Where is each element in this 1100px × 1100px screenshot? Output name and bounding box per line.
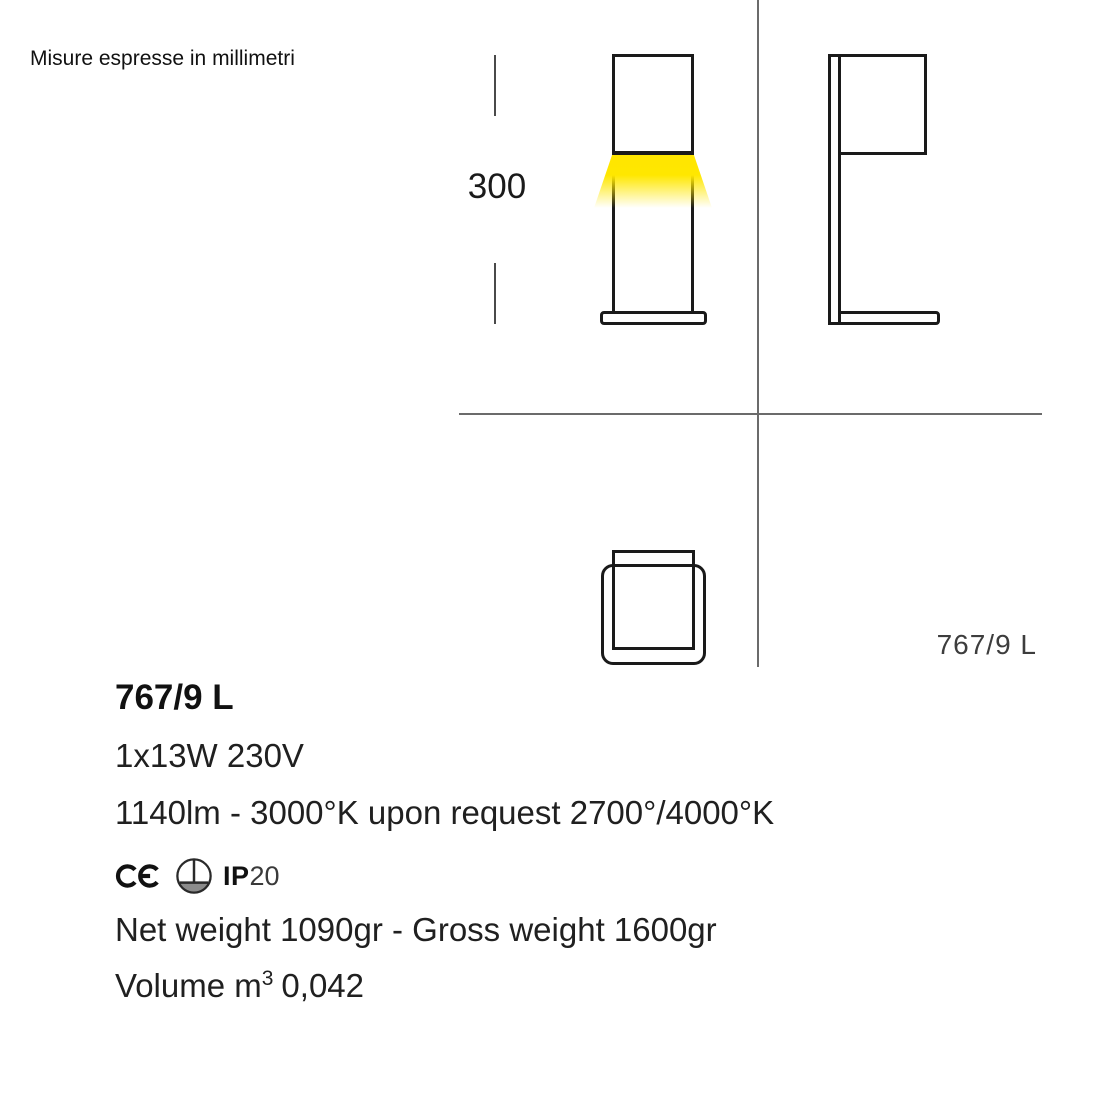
spec-color-temperature: 1140lm - 3000°K upon request 2700°/4000°… <box>115 794 774 832</box>
dimension-line-upper <box>494 55 496 116</box>
spec-certifications-row: IP20 <box>115 856 280 896</box>
spec-volume-superscript: 3 <box>262 967 274 990</box>
vertical-divider-line <box>757 0 759 667</box>
lamp-body-top <box>612 550 695 650</box>
light-band-edge <box>612 151 694 155</box>
spec-model-heading: 767/9 L <box>115 678 234 718</box>
spec-volume-value: 0,042 <box>281 967 364 1004</box>
base-plate-front <box>600 311 707 325</box>
spec-weight: Net weight 1090gr - Gross weight 1600gr <box>115 911 717 949</box>
dimension-line-lower <box>494 263 496 324</box>
floor-mounting-icon <box>175 857 213 895</box>
lamp-head-side <box>838 54 927 155</box>
drawing-model-label: 767/9 L <box>837 629 1037 661</box>
light-glow <box>594 155 712 208</box>
ce-mark-icon <box>115 858 163 894</box>
height-dimension-label: 300 <box>447 167 547 207</box>
ip-rating: IP20 <box>223 861 280 892</box>
spec-volume: Volume m30,042 <box>115 967 364 1005</box>
ip-rating-prefix: IP <box>223 861 250 892</box>
units-note: Misure espresse in millimetri <box>30 47 295 71</box>
datasheet-page: Misure espresse in millimetri 300 767/9 … <box>0 0 1100 1100</box>
spec-power: 1x13W 230V <box>115 737 304 775</box>
base-plate-side <box>838 311 940 325</box>
horizontal-divider-line <box>459 413 1042 415</box>
ip-rating-value: 20 <box>250 861 280 892</box>
spec-volume-prefix: Volume m <box>115 967 262 1004</box>
